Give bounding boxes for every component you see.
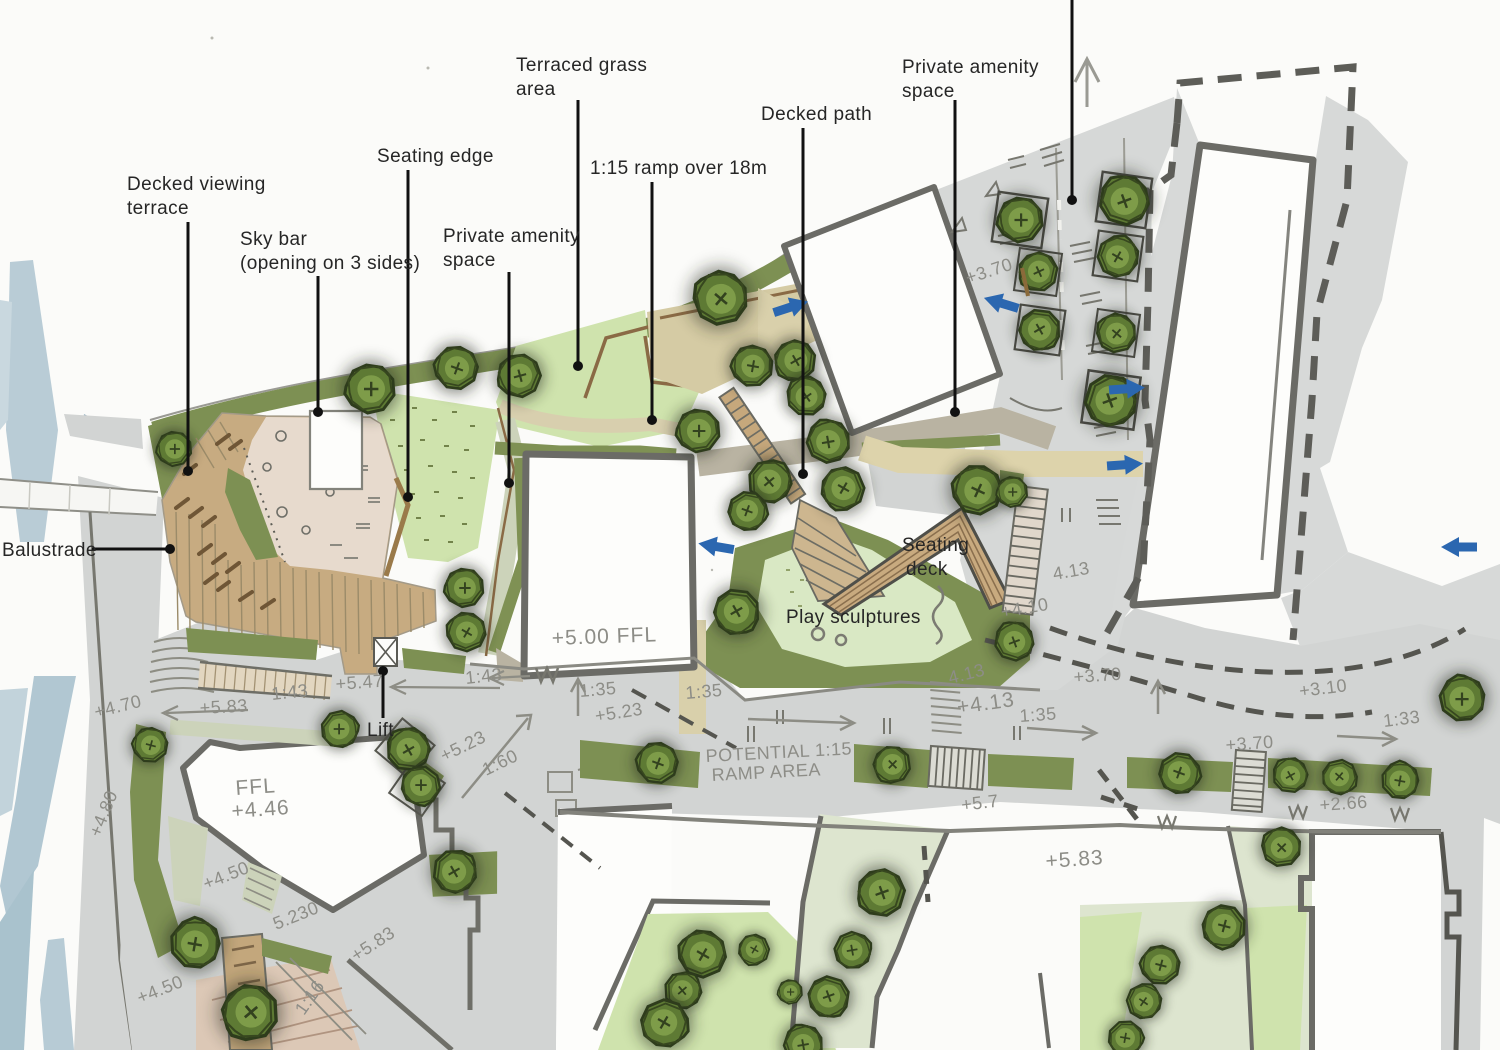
svg-text:Seating edge: Seating edge <box>377 146 494 167</box>
svg-text:Decked path: Decked path <box>761 104 872 125</box>
svg-text:space: space <box>443 250 496 271</box>
svg-text:+4.46: +4.46 <box>231 796 291 823</box>
svg-text:Decked viewing: Decked viewing <box>127 174 266 195</box>
svg-text:area: area <box>516 79 556 100</box>
svg-text:+5.00 FFL: +5.00 FFL <box>551 623 657 650</box>
svg-text:(opening on 3 sides): (opening on 3 sides) <box>240 253 420 274</box>
svg-text:+3.70: +3.70 <box>1073 664 1122 687</box>
svg-text:deck: deck <box>906 559 948 580</box>
svg-text:FFL: FFL <box>235 774 277 800</box>
svg-text:1:43: 1:43 <box>464 664 503 688</box>
svg-text:+2.66: +2.66 <box>1319 792 1368 815</box>
svg-text:Sky bar: Sky bar <box>240 229 307 250</box>
svg-text:+5.83: +5.83 <box>1045 846 1105 873</box>
svg-text:1:15 ramp over 18m: 1:15 ramp over 18m <box>590 158 767 179</box>
svg-text:Terraced grass: Terraced grass <box>516 55 647 76</box>
svg-text:+5.47: +5.47 <box>335 671 384 694</box>
svg-text:Lift: Lift <box>367 720 394 741</box>
svg-text:1:35: 1:35 <box>1019 703 1057 726</box>
svg-text:space: space <box>902 81 955 102</box>
svg-text:1:35: 1:35 <box>579 678 618 701</box>
svg-text:Seating: Seating <box>902 535 969 556</box>
svg-text:Private amenity: Private amenity <box>443 226 580 247</box>
svg-text:terrace: terrace <box>127 198 189 219</box>
svg-text:+3.70: +3.70 <box>1225 732 1274 755</box>
svg-text:1:43: 1:43 <box>270 680 309 704</box>
svg-text:+5.83: +5.83 <box>199 696 248 718</box>
svg-text:Private amenity: Private amenity <box>902 57 1039 78</box>
svg-text:Balustrade: Balustrade <box>2 540 97 561</box>
svg-text:1:35: 1:35 <box>685 680 724 703</box>
svg-text:Play sculptures: Play sculptures <box>786 607 921 628</box>
